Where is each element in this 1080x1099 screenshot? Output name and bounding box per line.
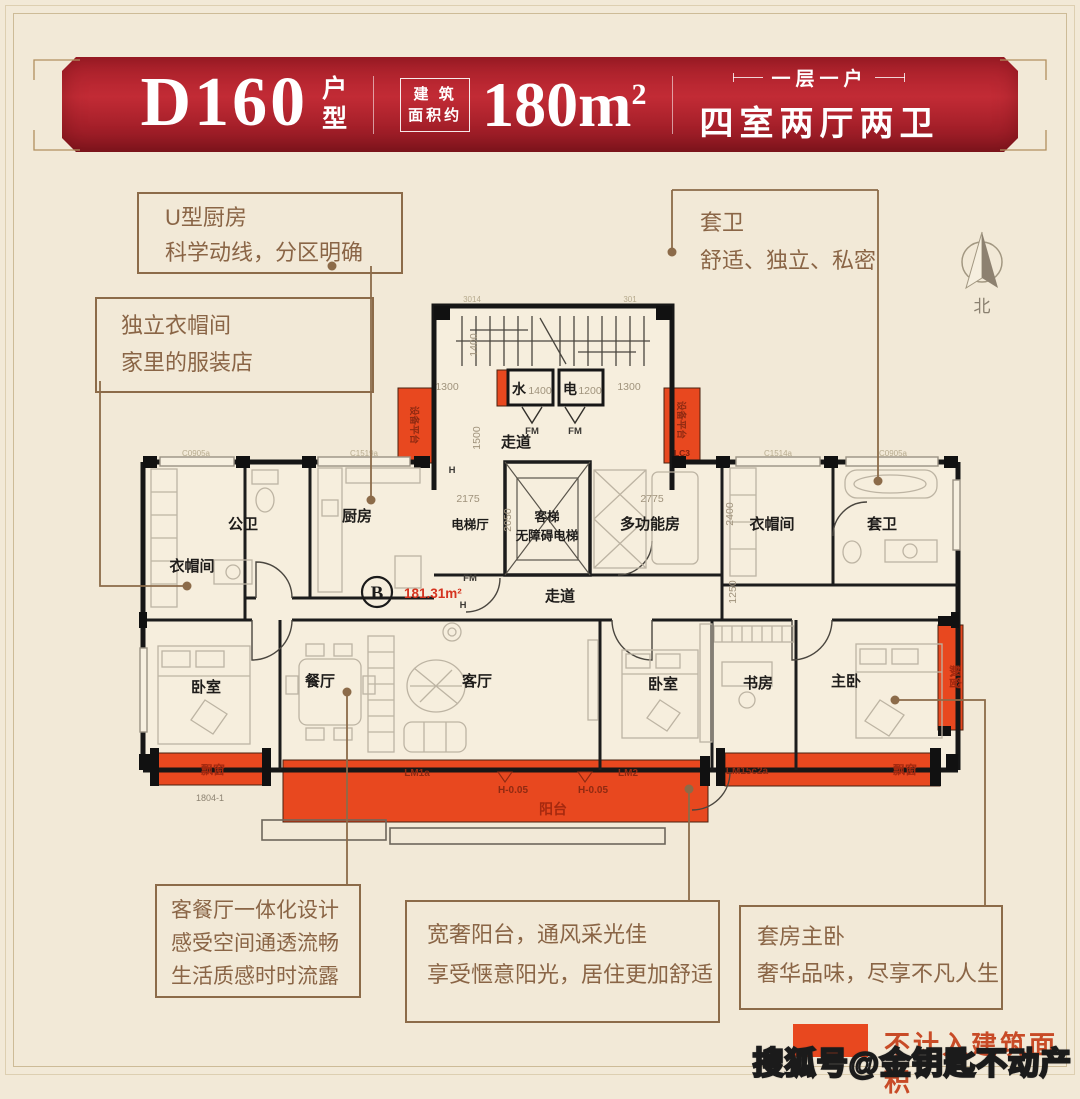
mark-hlevel-1: H-0.05 — [498, 785, 528, 796]
callout-cloakroom: 独立衣帽间 家里的服装店 — [95, 297, 374, 393]
unit-mark-letter: B — [371, 583, 384, 604]
banner-corner-deco — [34, 60, 1046, 150]
room-label-bedroom-left: 卧室 — [191, 678, 221, 696]
dim-2175: 2175 — [456, 493, 480, 505]
win-code-3: C1514a — [764, 449, 793, 458]
area-total-label: 181.31m² — [404, 586, 462, 601]
code-bay: 1804-1 — [196, 793, 224, 803]
room-label-suite-bath: 套卫 — [866, 515, 897, 533]
room-label-dining: 餐厅 — [305, 672, 335, 690]
mark-fm-2: FM — [568, 426, 582, 437]
compass: 北 — [962, 232, 1002, 316]
watermark: 搜狐号@金钥匙不动产 — [753, 1038, 1072, 1083]
mark-lm15: LM15c2a — [726, 766, 769, 777]
callout-balcony-line2: 享受惬意阳光，居住更加舒适 — [427, 955, 718, 995]
mark-lm1a: LM1a — [404, 768, 430, 779]
room-label-public-bath: 公卫 — [228, 516, 258, 533]
callout-suite-bath-line2: 舒适、独立、私密 — [700, 242, 906, 280]
mark-h-2: H — [460, 600, 467, 611]
label-bay-left: 飘窗 — [201, 762, 225, 777]
room-label-cloakroom-left: 衣帽间 — [169, 557, 214, 575]
mark-h-1: H — [449, 465, 456, 476]
compass-needle-left — [966, 232, 982, 288]
label-water-shaft: 水 — [512, 381, 527, 397]
callout-balcony-line1: 宽奢阳台，通风采光佳 — [427, 915, 718, 955]
callout-living-line1: 客餐厅一体化设计 — [171, 894, 359, 927]
win-code-4: C0905a — [879, 449, 908, 458]
callout-suite-bath: 套卫 舒适、独立、私密 — [672, 190, 906, 324]
callout-suite-bath-line1: 套卫 — [700, 204, 906, 242]
label-electric-shaft: 电 — [563, 381, 577, 397]
dim-1400: 1400 — [468, 333, 480, 357]
room-label-multifunction: 多功能房 — [620, 515, 680, 533]
room-label-study: 书房 — [743, 674, 773, 692]
label-equipment-left: 设备平台 — [408, 406, 420, 445]
code-top-1: 3014 — [463, 295, 481, 304]
dim-water: 1400 — [528, 385, 552, 397]
mark-lc3: LC3 — [674, 448, 690, 458]
callout-living-line3: 生活质感时时流露 — [171, 960, 359, 993]
callout-kitchen-line2: 科学动线，分区明确 — [165, 235, 401, 270]
callout-kitchen-line1: U型厨房 — [165, 200, 401, 235]
callout-cloakroom-line1: 独立衣帽间 — [121, 307, 372, 344]
balcony-edge — [262, 820, 665, 844]
room-label-cloakroom-right: 衣帽间 — [749, 515, 794, 533]
mark-hlevel-2: H-0.05 — [578, 785, 608, 796]
callout-master-line1: 套房主卧 — [757, 918, 1001, 955]
room-label-bedroom-mid: 卧室 — [648, 675, 678, 693]
dim-electric: 1200 — [578, 385, 602, 397]
dim-2050: 2050 — [502, 508, 514, 532]
dim-1300-left: 1300 — [435, 381, 459, 393]
room-label-kitchen: 厨房 — [342, 507, 372, 525]
callout-kitchen: U型厨房 科学动线，分区明确 — [137, 192, 403, 274]
shaft-red-sliver — [497, 370, 507, 406]
label-bay-right: 飘窗 — [893, 762, 917, 777]
label-bay-side: 飘窗 — [948, 665, 963, 689]
room-label-elevator-hall: 电梯厅 — [451, 517, 489, 532]
dim-2400: 2400 — [724, 502, 736, 526]
compass-needle-right — [982, 232, 998, 288]
room-label-elevator-1: 客梯 — [533, 509, 560, 524]
win-code-1: C0905a — [182, 449, 211, 458]
dim-1500: 1500 — [471, 426, 483, 450]
callout-living-line2: 感受空间通透流畅 — [171, 927, 359, 960]
callout-balcony: 宽奢阳台，通风采光佳 享受惬意阳光，居住更加舒适 — [405, 900, 720, 1023]
label-equipment-right: 设备平台 — [675, 401, 687, 440]
mark-lm2: LM2 — [618, 768, 638, 779]
mark-fm-3: FM — [463, 573, 477, 584]
dim-1300-right: 1300 — [617, 381, 641, 393]
callout-cloakroom-line2: 家里的服装店 — [121, 344, 372, 381]
callout-master: 套房主卧 奢华品味，尽享不凡人生 — [739, 905, 1003, 1010]
code-top-2: 301 — [623, 295, 637, 304]
room-label-elevator-2: 无障碍电梯 — [515, 528, 579, 543]
mark-fm-1: FM — [525, 426, 539, 437]
room-label-corridor-main: 走道 — [545, 587, 575, 605]
room-label-balcony: 阳台 — [539, 801, 567, 817]
room-label-master: 主卧 — [831, 672, 861, 690]
compass-north-label: 北 — [974, 297, 991, 316]
room-label-living: 客厅 — [461, 672, 492, 690]
callout-master-line2: 奢华品味，尽享不凡人生 — [757, 955, 1001, 992]
win-code-2: C1519a — [350, 449, 379, 458]
dim-1250: 1250 — [727, 580, 739, 604]
callout-living: 客餐厅一体化设计 感受空间通透流畅 生活质感时时流露 — [155, 884, 361, 998]
dim-2775: 2775 — [640, 493, 664, 505]
